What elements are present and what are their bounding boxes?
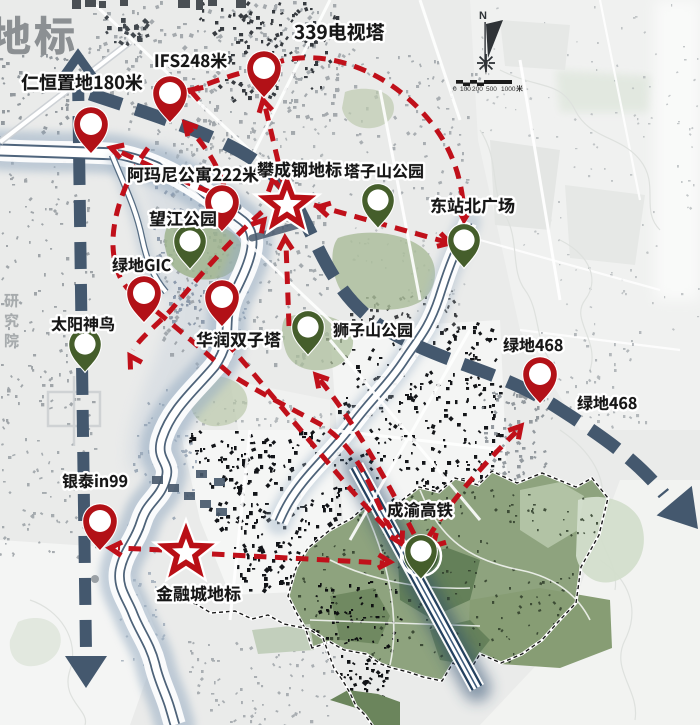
svg-text:0: 0: [453, 86, 457, 93]
svg-text:N: N: [479, 10, 487, 22]
svg-text:1000: 1000: [501, 86, 516, 93]
svg-text:200: 200: [472, 86, 483, 93]
svg-text:500: 500: [486, 86, 497, 93]
svg-text:100: 100: [460, 86, 471, 93]
